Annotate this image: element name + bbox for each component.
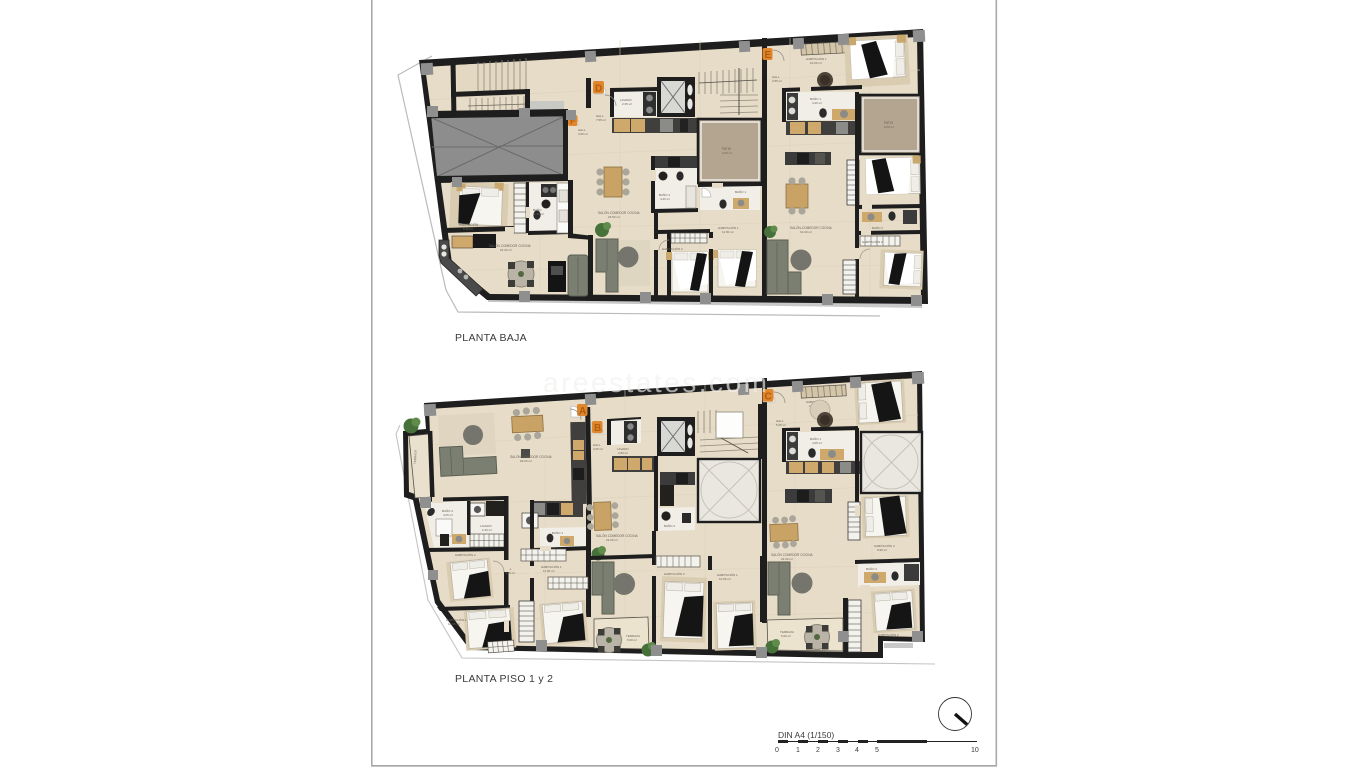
svg-text:10.05 m²: 10.05 m² <box>719 577 731 581</box>
svg-text:HABITACIÓN 2: HABITACIÓN 2 <box>878 632 899 637</box>
svg-text:BAÑO 2: BAÑO 2 <box>872 225 883 230</box>
svg-text:2.80 m²: 2.80 m² <box>618 451 628 455</box>
svg-text:1: 1 <box>796 747 800 754</box>
svg-text:9.00 m²: 9.00 m² <box>722 151 732 155</box>
svg-text:10: 10 <box>971 747 979 754</box>
svg-text:5.00 m²: 5.00 m² <box>627 638 637 642</box>
svg-text:BAÑO 2: BAÑO 2 <box>866 566 877 571</box>
svg-text:4.20 m²: 4.20 m² <box>812 101 822 105</box>
svg-text:2.30 m²: 2.30 m² <box>482 528 492 532</box>
svg-text:0: 0 <box>775 747 779 754</box>
svg-text:10.00 m²: 10.00 m² <box>810 61 822 65</box>
svg-text:PLANTA PISO 1 y 2: PLANTA PISO 1 y 2 <box>455 673 553 685</box>
svg-text:D: D <box>595 84 602 95</box>
svg-text:11.50 m²: 11.50 m² <box>722 230 734 234</box>
svg-text:areestates.com: areestates.com <box>543 367 769 398</box>
svg-text:BAÑO 1: BAÑO 1 <box>735 189 746 194</box>
svg-text:HABITACIÓN 2: HABITACIÓN 2 <box>662 246 683 251</box>
svg-text:9.90 m²: 9.90 m² <box>877 548 887 552</box>
svg-text:E: E <box>765 50 772 61</box>
svg-text:HABITACIÓN 2: HABITACIÓN 2 <box>664 571 685 576</box>
svg-text:3: 3 <box>836 747 840 754</box>
svg-text:B: B <box>594 423 601 434</box>
svg-text:24.30 m²: 24.30 m² <box>500 248 512 252</box>
svg-text:BAÑO 1: BAÑO 1 <box>552 530 563 535</box>
svg-text:HABITACIÓN 2: HABITACIÓN 2 <box>455 552 476 557</box>
svg-text:11.90 m²: 11.90 m² <box>543 569 555 573</box>
svg-text:5: 5 <box>875 747 879 754</box>
svg-text:23.00 m²: 23.00 m² <box>606 538 618 542</box>
svg-text:3.00 m²: 3.00 m² <box>578 132 588 136</box>
svg-text:9.40 m²: 9.40 m² <box>463 227 473 231</box>
svg-text:5.00 m²: 5.00 m² <box>781 634 791 638</box>
svg-text:4.05 m²: 4.05 m² <box>812 441 822 445</box>
svg-text:1.90 m²: 1.90 m² <box>534 212 544 216</box>
svg-text:7.55 m²: 7.55 m² <box>596 118 606 122</box>
svg-text:22.00 m²: 22.00 m² <box>781 557 793 561</box>
svg-text:TERRAZA: TERRAZA <box>413 450 418 464</box>
svg-text:4.05 m²: 4.05 m² <box>443 513 453 517</box>
svg-text:19.40 m²: 19.40 m² <box>800 230 812 234</box>
svg-text:3.05 m²: 3.05 m² <box>593 447 603 451</box>
svg-text:DIN A4 (1/150): DIN A4 (1/150) <box>778 730 834 740</box>
svg-text:5.05 m²: 5.05 m² <box>776 423 786 427</box>
svg-text:23.50 m²: 23.50 m² <box>608 215 620 219</box>
svg-text:2: 2 <box>816 747 820 754</box>
svg-text:29.00 m²: 29.00 m² <box>520 459 532 463</box>
svg-text:4: 4 <box>855 747 859 754</box>
svg-text:9.00 m²: 9.00 m² <box>884 125 894 129</box>
svg-text:PLANTA BAJA: PLANTA BAJA <box>455 332 527 344</box>
svg-text:2.35 m²: 2.35 m² <box>622 102 632 106</box>
svg-text:2.55 m²: 2.55 m² <box>772 79 782 83</box>
svg-text:4.20 m²: 4.20 m² <box>660 197 670 201</box>
svg-text:HABITACIÓN 2: HABITACIÓN 2 <box>862 239 883 244</box>
svg-text:BAÑO 2: BAÑO 2 <box>664 523 675 528</box>
svg-text:10.05 m²: 10.05 m² <box>448 622 460 626</box>
